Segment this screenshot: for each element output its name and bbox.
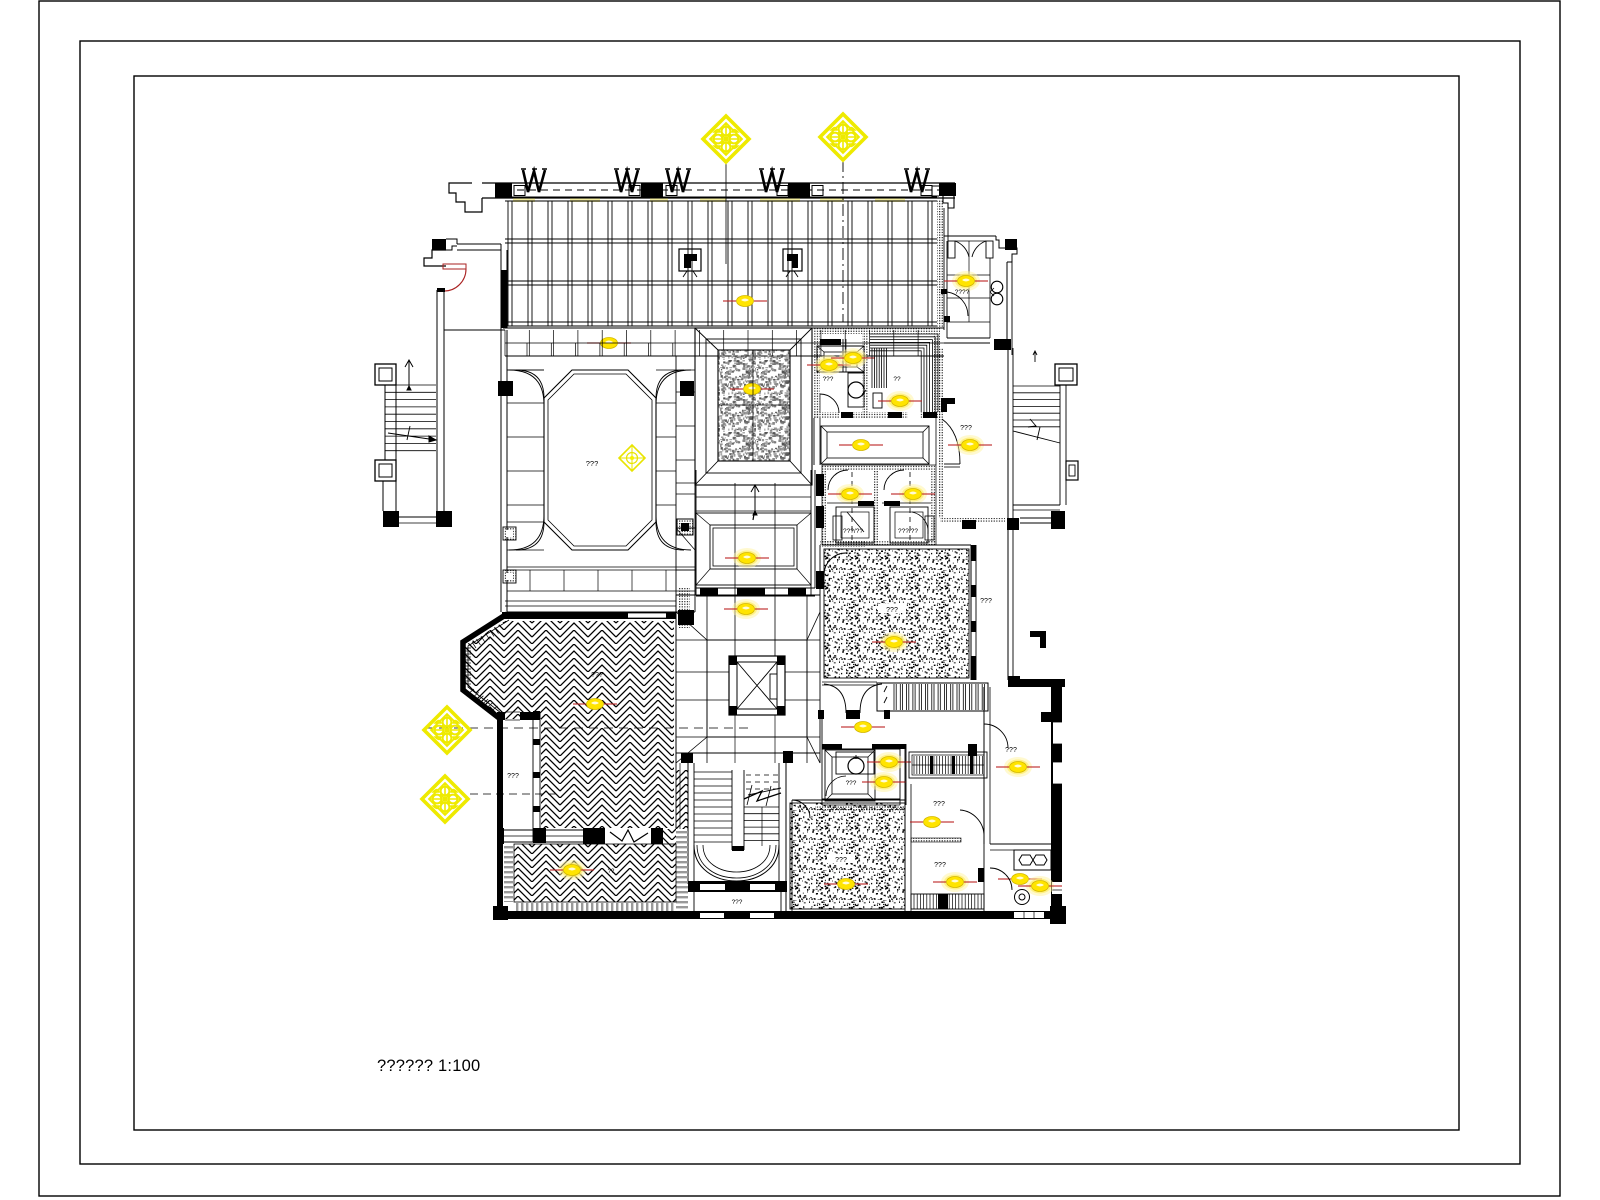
svg-text:???/??: ???/??: [843, 528, 863, 535]
svg-text:???: ???: [934, 862, 946, 869]
svg-text:???: ???: [846, 780, 857, 787]
svg-text:???: ???: [732, 899, 743, 906]
svg-text:???: ???: [823, 376, 834, 383]
svg-text:???: ???: [933, 801, 945, 808]
svg-text:???: ???: [507, 773, 519, 780]
svg-text:???: ???: [1005, 747, 1017, 754]
svg-text:?????? 1:100: ?????? 1:100: [377, 1057, 480, 1075]
svg-text:??: ??: [608, 869, 615, 875]
svg-text:???: ???: [835, 857, 847, 864]
svg-text:???: ???: [586, 459, 599, 468]
svg-text:???: ???: [960, 425, 972, 432]
svg-text:????: ????: [955, 289, 970, 296]
svg-text:???: ???: [886, 607, 898, 614]
svg-text:???/??: ???/??: [898, 528, 918, 535]
svg-text:??: ??: [893, 376, 901, 383]
svg-text:???: ???: [591, 672, 603, 679]
svg-text:???: ???: [980, 598, 992, 605]
